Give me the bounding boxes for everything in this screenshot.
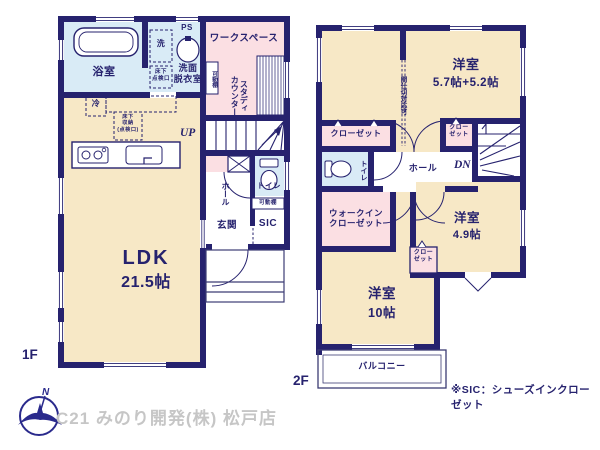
- room-b-size: 4.9帖: [427, 229, 507, 242]
- room-a-size: 5.7帖+5.2帖: [413, 76, 519, 90]
- sic-note: ※SIC：シューズインクローゼット: [451, 382, 600, 412]
- closet-left-label: クローゼット: [322, 129, 390, 139]
- floor1-tag: 1F: [22, 347, 38, 362]
- movable-shelf2-label: 可動棚: [252, 200, 284, 207]
- room-c-label: 洋室: [341, 286, 423, 302]
- stairs-down-label: DN: [454, 158, 471, 172]
- room-b-label: 洋室: [427, 211, 507, 226]
- room-toilet2-label: トイレ: [355, 155, 367, 185]
- room-hall-label: ホール: [216, 172, 230, 216]
- ps-label: PS: [174, 23, 200, 33]
- stairs-up-label: UP: [180, 126, 195, 140]
- sink-icon: [177, 38, 199, 62]
- kitchen-counter-icon: [72, 142, 180, 168]
- partition-note-label: 間仕切対応可: [394, 53, 406, 137]
- stairs-up-icon: [216, 121, 284, 150]
- room-ldk-label: LDK: [96, 246, 196, 270]
- washer-label: 洗: [150, 39, 172, 49]
- underfloor-storage-label: 床下 収納 (点検口): [113, 114, 143, 133]
- floor2-tag: 2F: [293, 373, 309, 388]
- room-c-size: 10帖: [341, 306, 423, 321]
- compass-north-label: N: [42, 387, 49, 398]
- room-a-label: 洋室: [426, 57, 506, 73]
- room-hall2-label: ホール: [388, 163, 458, 174]
- room-sic-label: SIC: [252, 218, 284, 230]
- study-counter-label: スタディ カウンター: [230, 61, 248, 131]
- room-workspace-label: ワークスペース: [204, 33, 284, 45]
- room-bath-label: 浴室: [74, 66, 134, 79]
- toilet2-icon: [325, 161, 351, 177]
- room-toilet-label: トイレ: [253, 181, 285, 190]
- floor1-plan: 浴室 PS 洗面 脱衣室 洗 床下 点検口 ワークスペース スタディ カウンター…: [58, 16, 296, 372]
- room-wic-label: ウォークイン クローゼット: [320, 208, 392, 229]
- room-ldk-size: 21.5帖: [96, 273, 196, 293]
- underfloor-hatch-label: 床下 点検口: [150, 69, 172, 82]
- fridge-label: 冷: [86, 99, 106, 109]
- company-footer: C21 みのり開発(株) 松戸店: [56, 404, 277, 429]
- floorplan-page: 浴室 PS 洗面 脱衣室 洗 床下 点検口 ワークスペース スタディ カウンター…: [0, 0, 600, 450]
- balcony-label: バルコニー: [332, 361, 432, 372]
- room-entrance-label: 玄関: [206, 220, 248, 232]
- entrance-porch-icon: [206, 250, 284, 302]
- closet-small-label: クロー ゼット: [443, 125, 475, 140]
- closet-near-49-label: クロー ゼット: [409, 250, 438, 265]
- movable-shelf-label: 可動棚: [207, 65, 217, 93]
- floor2-plan: 間仕切対応可 洋室 5.7帖+5.2帖 クローゼット クロー ゼット トイレ ホ…: [310, 20, 532, 392]
